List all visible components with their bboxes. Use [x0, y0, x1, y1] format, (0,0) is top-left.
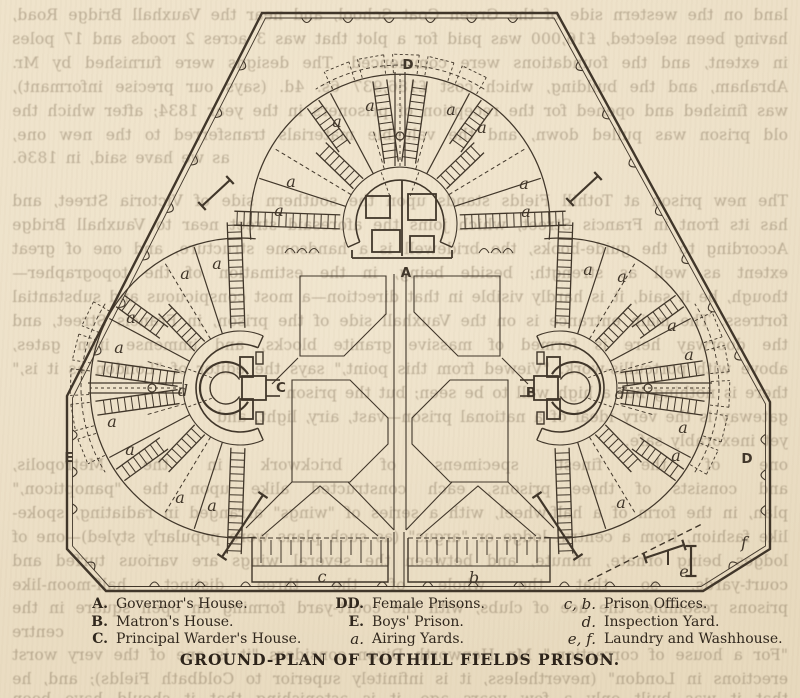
- plan-label-e: e: [679, 562, 688, 581]
- legend-column-2: DD.Female Prisons.E.Boys' Prison.a.Airin…: [330, 596, 485, 649]
- legend-label: Boys' Prison.: [364, 614, 464, 632]
- legend-label: Laundry and Washhouse.: [596, 631, 783, 649]
- plan-label-a: a: [212, 254, 222, 273]
- plan-label-f: f: [740, 533, 750, 552]
- scanned-book-page: land on the western side of the Green Co…: [0, 0, 800, 698]
- legend-label: Female Prisons.: [364, 596, 485, 614]
- legend-key: E.: [330, 614, 364, 632]
- plan-label-a: a: [332, 112, 342, 131]
- plan-label-a: a: [477, 118, 487, 137]
- legend-label: Prison Offices.: [596, 596, 707, 614]
- plan-label-b: b: [469, 568, 479, 587]
- plan-label-a: a: [684, 345, 694, 364]
- legend-item: a.Airing Yards.: [330, 631, 485, 649]
- plan-label-A: A: [401, 265, 412, 281]
- plan-label-a: a: [583, 260, 593, 279]
- legend-key: DD.: [330, 596, 364, 614]
- plan-label-a: a: [126, 308, 136, 327]
- legend-key: A.: [82, 596, 108, 614]
- plan-label-a: a: [667, 316, 677, 335]
- plan-label-a: a: [521, 202, 531, 221]
- plan-label-a: a: [274, 201, 284, 220]
- plan-label-a: a: [175, 488, 185, 507]
- plan-label-a: a: [671, 446, 681, 465]
- plan-label-c: c: [318, 567, 327, 586]
- legend-item: e, f.Laundry and Washhouse.: [556, 631, 783, 649]
- legend-item: d.Inspection Yard.: [556, 614, 783, 632]
- plan-label-a: a: [678, 418, 688, 437]
- legend-key: c, b.: [556, 596, 596, 614]
- plan-label-a: a: [365, 96, 375, 115]
- plan-label-C: C: [276, 380, 286, 396]
- legend-label: Principal Warder's House.: [108, 631, 301, 649]
- legend-key: a.: [330, 631, 364, 649]
- legend-key: C.: [82, 631, 108, 649]
- plan-label-a: a: [616, 493, 626, 512]
- legend-key: B.: [82, 614, 108, 632]
- legend-item: A.Governor's House.: [82, 596, 301, 614]
- plan-label-a: a: [446, 100, 456, 119]
- plan-label-B: B: [526, 385, 536, 401]
- legend-item: C.Principal Warder's House.: [82, 631, 301, 649]
- plan-label-a: a: [617, 267, 627, 286]
- plan-label-D: D: [741, 451, 752, 467]
- plan-label-a: a: [114, 338, 124, 357]
- legend-label: Governor's House.: [108, 596, 248, 614]
- plan-label-a: a: [180, 264, 190, 283]
- plan-legend: A.Governor's House.B.Matron's House.C.Pr…: [0, 596, 800, 644]
- plan-title: GROUND-PLAN OF TOTHILL FIELDS PRISON.: [0, 650, 800, 669]
- panopticon-wing: [234, 54, 566, 258]
- legend-column-1: A.Governor's House.B.Matron's House.C.Pr…: [82, 596, 301, 649]
- plan-label-E: E: [64, 450, 73, 466]
- legend-key: d.: [556, 614, 596, 632]
- legend-item: E.Boys' Prison.: [330, 614, 485, 632]
- legend-item: c, b.Prison Offices.: [556, 596, 783, 614]
- legend-column-3: c, b.Prison Offices.d.Inspection Yard.e,…: [556, 596, 783, 649]
- legend-label: Airing Yards.: [364, 631, 464, 649]
- plan-label-a: a: [125, 440, 135, 459]
- plan-label-d: d: [615, 384, 625, 403]
- legend-item: DD.Female Prisons.: [330, 596, 485, 614]
- plan-label-a: a: [286, 172, 296, 191]
- legend-label: Inspection Yard.: [596, 614, 719, 632]
- plan-label-a: a: [207, 496, 217, 515]
- plan-label-d: d: [178, 381, 188, 400]
- prison-ground-plan-engraving: DACBEDddcbefaaaaaaaaaaaaaaaaaaaaaaa: [0, 0, 800, 698]
- plan-label-D: D: [402, 57, 413, 73]
- plan-ink-layer: [67, 13, 770, 591]
- plan-label-a: a: [107, 412, 117, 431]
- legend-key: e, f.: [556, 631, 596, 649]
- plan-label-a: a: [519, 174, 529, 193]
- legend-item: B.Matron's House.: [82, 614, 301, 632]
- legend-label: Matron's House.: [108, 614, 234, 632]
